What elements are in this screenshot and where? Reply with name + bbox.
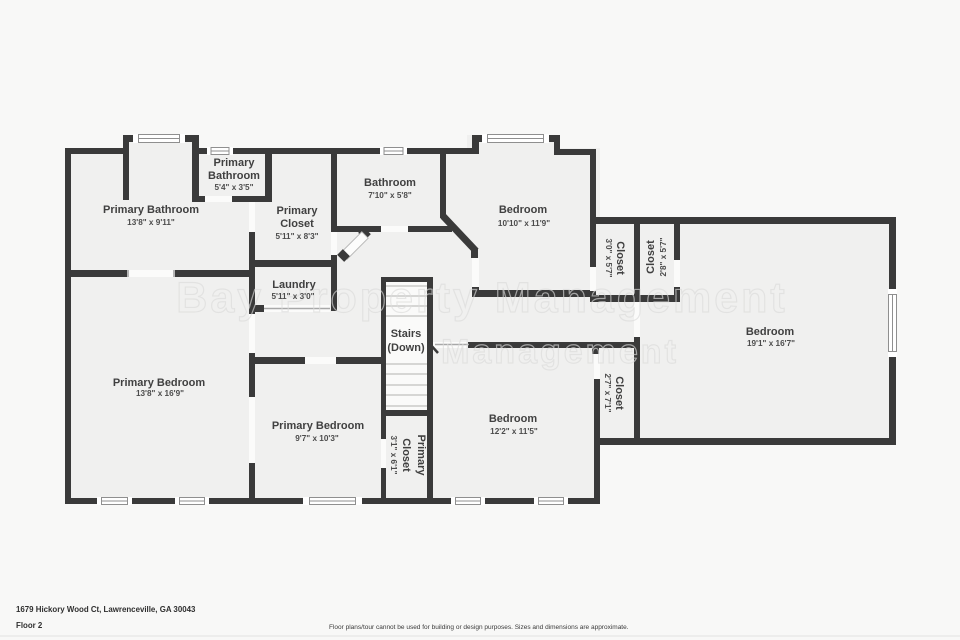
svg-text:(Down): (Down) <box>387 342 425 354</box>
svg-text:1679 Hickory Wood Ct, Lawrence: 1679 Hickory Wood Ct, Lawrenceville, GA … <box>16 605 196 614</box>
svg-text:Closet: Closet <box>645 240 657 274</box>
svg-text:Primary Bedroom: Primary Bedroom <box>113 377 206 389</box>
svg-text:Primary: Primary <box>415 435 427 477</box>
svg-text:10'10" x 11'9": 10'10" x 11'9" <box>498 219 550 228</box>
svg-text:Primary: Primary <box>214 157 256 169</box>
svg-text:13'8" x 9'11": 13'8" x 9'11" <box>127 218 175 227</box>
svg-text:Bathroom: Bathroom <box>364 177 416 189</box>
svg-text:2'8" x 5'7": 2'8" x 5'7" <box>659 237 668 276</box>
svg-text:3'0" x 5'7": 3'0" x 5'7" <box>604 239 613 278</box>
svg-text:Bedroom: Bedroom <box>489 413 538 425</box>
svg-text:Closet: Closet <box>613 376 625 410</box>
svg-text:Bathroom: Bathroom <box>208 170 260 182</box>
svg-text:9'7" x 10'3": 9'7" x 10'3" <box>295 434 339 443</box>
svg-text:19'1" x 16'7": 19'1" x 16'7" <box>747 339 795 348</box>
svg-text:Primary: Primary <box>277 205 319 217</box>
svg-text:5'11" x 3'0": 5'11" x 3'0" <box>271 292 314 301</box>
svg-text:5'4" x 3'5": 5'4" x 3'5" <box>215 183 254 192</box>
svg-text:3'1" x 6'1": 3'1" x 6'1" <box>389 436 398 475</box>
svg-text:13'8" x 16'9": 13'8" x 16'9" <box>136 389 184 398</box>
svg-text:Floor plans/tour cannot be use: Floor plans/tour cannot be used for buil… <box>329 624 629 631</box>
svg-text:12'2" x 11'5": 12'2" x 11'5" <box>490 427 538 436</box>
svg-text:Closet: Closet <box>614 241 626 275</box>
svg-text:7'10" x 5'8": 7'10" x 5'8" <box>368 191 412 200</box>
svg-text:Closet: Closet <box>280 218 314 230</box>
svg-text:Stairs: Stairs <box>391 328 422 340</box>
svg-text:Bay Property Management: Bay Property Management <box>176 274 787 322</box>
svg-text:Primary Bedroom: Primary Bedroom <box>272 420 365 432</box>
svg-text:Laundry: Laundry <box>272 279 316 291</box>
svg-text:Primary Bathroom: Primary Bathroom <box>103 204 199 216</box>
svg-text:Bedroom: Bedroom <box>499 204 548 216</box>
svg-text:Closet: Closet <box>400 438 412 472</box>
svg-text:Bedroom: Bedroom <box>746 326 795 338</box>
svg-text:Management: Management <box>441 333 679 371</box>
svg-text:5'11" x 8'3": 5'11" x 8'3" <box>275 232 318 241</box>
svg-text:Floor 2: Floor 2 <box>16 621 43 630</box>
svg-text:2'7" x 7'1": 2'7" x 7'1" <box>603 374 612 413</box>
